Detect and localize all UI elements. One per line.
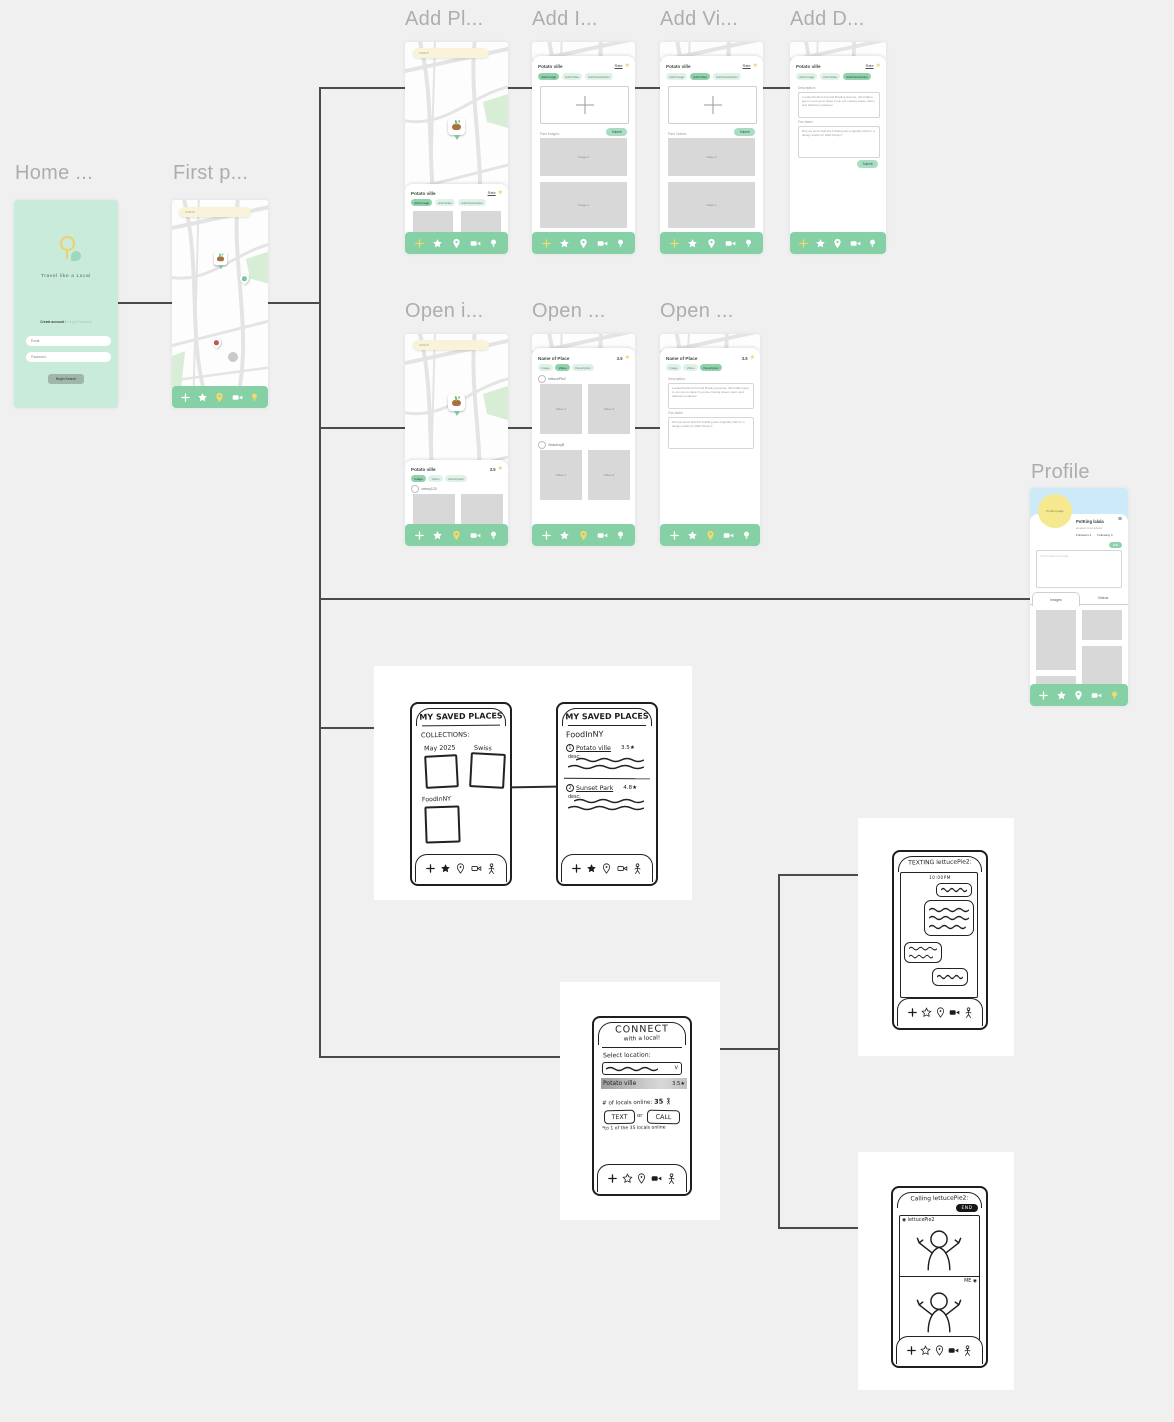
- star-icon[interactable]: [440, 863, 451, 874]
- star-icon[interactable]: [432, 238, 443, 249]
- star-icon: ★: [498, 466, 503, 472]
- collection-thumbnail[interactable]: [424, 805, 460, 843]
- frame-open-video[interactable]: Name of Place 3.5 ★ Image Video Descript…: [532, 334, 635, 546]
- app-tagline: Travel like a Local: [14, 274, 118, 279]
- username[interactable]: lettucePie2: [549, 377, 566, 381]
- image-upload-box[interactable]: [540, 86, 629, 124]
- flow-connector: [508, 87, 532, 89]
- add-icon[interactable]: [180, 392, 191, 403]
- star-icon[interactable]: [197, 392, 208, 403]
- video-tab-pill[interactable]: Video: [428, 475, 442, 482]
- flow-connector: [118, 302, 172, 304]
- place-name: Name of Place: [666, 356, 697, 361]
- locals-online-label: # of locals online:: [602, 1100, 652, 1107]
- submit-button[interactable]: Submit: [606, 128, 627, 136]
- star-icon[interactable]: [687, 530, 698, 541]
- add-description-pill[interactable]: Add Description: [843, 73, 871, 80]
- image-tab-pill[interactable]: Image: [538, 364, 553, 371]
- avatar-label: Profile Image: [1046, 509, 1064, 513]
- bottom-nav: [532, 232, 635, 254]
- rating-value: 3.5: [490, 467, 496, 472]
- collection-thumbnail[interactable]: [469, 752, 506, 789]
- fun-facts-textarea[interactable]: Did you know that this building was orig…: [668, 417, 754, 449]
- fun-facts-textarea[interactable]: Did you know that this building was orig…: [798, 126, 880, 158]
- video-tab-pill[interactable]: Video: [683, 364, 697, 371]
- user-video[interactable]: Video 2: [588, 450, 630, 500]
- star-icon[interactable]: [815, 238, 826, 249]
- video-icon[interactable]: [232, 392, 243, 403]
- search-input[interactable]: search: [413, 340, 489, 350]
- chat-bubble-received: [904, 942, 942, 963]
- submit-button[interactable]: Submit: [857, 160, 878, 168]
- sketch-nav-icons: [418, 856, 504, 880]
- flow-connector: [321, 427, 405, 429]
- flow-connector: [780, 874, 858, 876]
- selected-rating: 3.5★: [672, 1081, 685, 1087]
- selected-place: Potato ville: [603, 1080, 636, 1087]
- video-call-screen: ◉ lettucePie2 ME ◉: [899, 1215, 980, 1341]
- collection-thumbnail[interactable]: [424, 754, 459, 789]
- text-button[interactable]: TEXT: [604, 1110, 635, 1125]
- potato-icon: [452, 124, 461, 130]
- frame-add-video[interactable]: Potato ville Rate ★ Add Image Add Video …: [660, 42, 763, 254]
- user-video[interactable]: Video 2: [588, 384, 630, 434]
- past-image-label: Image 2: [578, 155, 589, 159]
- pin-icon[interactable]: [935, 1007, 946, 1018]
- video-icon[interactable]: [1091, 690, 1102, 701]
- add-icon[interactable]: [906, 1345, 917, 1356]
- location-dropdown[interactable]: v: [602, 1062, 682, 1075]
- search-placeholder: search: [419, 51, 429, 55]
- me-stick-figure: [912, 1288, 966, 1336]
- potato-place-marker[interactable]: [214, 252, 228, 266]
- flow-connector: [268, 302, 320, 304]
- user-avatar: [538, 375, 546, 383]
- description-textarea[interactable]: Located behind 2nd and Bowling Avenue, t…: [798, 92, 880, 118]
- past-video-label: Video 1: [706, 203, 716, 207]
- call-button[interactable]: CALL: [647, 1110, 680, 1125]
- description-tab-pill[interactable]: Description: [445, 475, 467, 482]
- star-icon: ★: [753, 63, 758, 69]
- text-button-label: TEXT: [611, 1113, 627, 1121]
- video-icon[interactable]: [651, 1173, 662, 1184]
- person-icon[interactable]: [486, 863, 497, 874]
- video-icon[interactable]: [850, 238, 861, 249]
- profile-name: PotKing lalala: [1076, 519, 1104, 524]
- person-icon[interactable]: [632, 863, 643, 874]
- connect-note: *to 1 of the 35 locals online: [602, 1125, 666, 1131]
- video-tab-pill[interactable]: Video: [555, 364, 569, 371]
- past-video-2[interactable]: Video 2: [668, 138, 755, 176]
- add-video-pill[interactable]: Add Video: [820, 73, 841, 80]
- star-icon[interactable]: [432, 530, 443, 541]
- sketch-canvas-texting[interactable]: TEXTING lettucePie2: 10:00PM: [858, 818, 1014, 1056]
- past-image-label: Image 1: [578, 203, 589, 207]
- sketch-calling-phone: Calling lettucePie2: END ◉ lettucePie2 M…: [891, 1186, 988, 1368]
- add-description-pill[interactable]: Add Description: [713, 73, 741, 80]
- add-icon[interactable]: [1038, 690, 1049, 701]
- star-icon[interactable]: [921, 1007, 932, 1018]
- past-video-label: Video 2: [706, 155, 716, 159]
- pin-icon[interactable]: [455, 863, 466, 874]
- password-field-label: Password:: [31, 355, 46, 359]
- star-icon[interactable]: [687, 238, 698, 249]
- flow-connector: [780, 1227, 858, 1229]
- place-bottom-sheet[interactable]: Name of Place 3.5 ★ Image Video Descript…: [532, 348, 635, 546]
- bottom-nav: [172, 386, 268, 408]
- place-bottom-sheet[interactable]: Potato ville Rate ★ Add Image Add Video …: [790, 56, 886, 254]
- collection-name: Swiss: [474, 744, 492, 753]
- camera-icon: ◉: [973, 1279, 977, 1284]
- sketch-saved-collections-phone: MY SAVED PLACES COLLECTIONS: May 2025 Sw…: [410, 702, 512, 886]
- tab-videos-label: Videos: [1098, 596, 1109, 600]
- description-textarea[interactable]: Located behind 2nd and Bowling Avenue, t…: [668, 383, 754, 409]
- sketch-saved-list-phone: MY SAVED PLACES FoodInNY 1 Potato ville …: [556, 702, 658, 886]
- item-number: 2: [566, 784, 574, 792]
- add-image-pill[interactable]: Add Image: [538, 73, 559, 80]
- potato-place-marker[interactable]: [448, 118, 465, 135]
- fun-facts-label: Fun facts!: [668, 411, 683, 415]
- link-divider: /: [65, 320, 66, 324]
- flow-connector: [321, 1056, 560, 1058]
- star-icon[interactable]: [559, 238, 570, 249]
- image-tab-pill[interactable]: Image: [666, 364, 681, 371]
- frame-title-open-video[interactable]: Open ...: [532, 300, 606, 323]
- description-tab-pill[interactable]: Description: [572, 364, 594, 371]
- user-video[interactable]: Video 1: [540, 384, 582, 434]
- about-input[interactable]: Tell us about yourself...: [1036, 550, 1122, 588]
- star-icon: ★: [625, 355, 630, 361]
- description-label: Description:: [668, 377, 686, 381]
- pin-icon[interactable]: [705, 530, 716, 541]
- past-video-1[interactable]: Video 1: [668, 182, 755, 228]
- bottom-nav: [660, 524, 760, 546]
- password-field[interactable]: Password:: [26, 352, 111, 362]
- video-icon[interactable]: [597, 238, 608, 249]
- search-input[interactable]: search: [413, 48, 489, 58]
- frame-open-description[interactable]: Name of Place 3.5 ★ Image Video Descript…: [660, 334, 760, 546]
- rate-link[interactable]: Rate: [743, 64, 751, 68]
- add-icon[interactable]: [541, 238, 552, 249]
- email-field-label: Email:: [31, 339, 40, 343]
- sketch-header: MY SAVED PLACES: [412, 711, 510, 722]
- video-icon[interactable]: [470, 530, 481, 541]
- map-background: [172, 200, 268, 408]
- add-video-pill[interactable]: Add Video: [435, 199, 456, 206]
- sketch-connector: [510, 786, 556, 789]
- saved-place-link[interactable]: Potato ville: [576, 745, 611, 752]
- add-icon[interactable]: [907, 1007, 918, 1018]
- following-count[interactable]: Following 4: [1097, 533, 1112, 537]
- email-field[interactable]: Email:: [26, 336, 111, 346]
- username[interactable]: celery123: [422, 487, 437, 491]
- add-icon[interactable]: [607, 1173, 618, 1184]
- person-icon[interactable]: [962, 1345, 973, 1356]
- saved-place-rating: 4.8★: [623, 785, 637, 791]
- fun-facts-label: Fun facts!: [798, 120, 813, 124]
- flow-connector: [321, 727, 374, 729]
- bulb-icon[interactable]: [615, 530, 626, 541]
- collection-name: May 2025: [424, 743, 456, 752]
- collection-title: FoodInNY: [566, 730, 604, 740]
- bulb-icon[interactable]: [488, 238, 499, 249]
- search-input[interactable]: search: [179, 207, 251, 217]
- create-account-link[interactable]: Create account: [40, 320, 64, 324]
- star-icon: ★: [750, 355, 755, 361]
- pin-icon[interactable]: [451, 238, 462, 249]
- video-icon[interactable]: [723, 530, 734, 541]
- sketch-canvas-saved-places[interactable]: MY SAVED PLACES COLLECTIONS: May 2025 Sw…: [374, 666, 692, 900]
- frame-title-add-video[interactable]: Add Vi...: [660, 8, 738, 31]
- bottom-nav: [660, 232, 763, 254]
- bulb-icon[interactable]: [743, 238, 754, 249]
- bottom-nav: [405, 232, 508, 254]
- sketch-header: MY SAVED PLACES: [558, 712, 656, 722]
- description-tab-pill[interactable]: Description: [700, 364, 722, 371]
- video-caption: Video 2: [604, 473, 614, 477]
- place-bottom-sheet[interactable]: Potato ville Rate ★ Add Image Add Video …: [660, 56, 763, 254]
- flow-connector: [635, 87, 660, 89]
- flow-connector: [321, 598, 1030, 600]
- username[interactable]: BokchoyB: [549, 443, 565, 447]
- pin-icon[interactable]: [934, 1345, 945, 1356]
- saved-place-link[interactable]: Sunset Park: [576, 785, 613, 792]
- flow-connector: [778, 874, 780, 1229]
- add-video-pill[interactable]: Add Video: [690, 73, 711, 80]
- add-image-pill[interactable]: Add Image: [411, 199, 432, 206]
- frame-title-home[interactable]: Home ...: [15, 162, 93, 185]
- search-placeholder: search: [185, 210, 195, 214]
- remote-stick-figure: [912, 1226, 966, 1274]
- tab-images[interactable]: Images: [1032, 592, 1080, 606]
- star-icon: ★: [625, 63, 630, 69]
- rating-value: 3.5: [617, 356, 623, 361]
- user-avatar: [411, 485, 419, 493]
- frame-profile[interactable]: Profile Image ≡ PotKing lalala amateur l…: [1030, 488, 1128, 706]
- place-name: Potato ville: [666, 64, 691, 69]
- menu-icon[interactable]: ≡: [1118, 516, 1122, 523]
- bulb-icon[interactable]: [249, 392, 260, 403]
- place-name: Potato ville: [796, 64, 821, 69]
- me-label: ME: [964, 1279, 971, 1284]
- place-name: Potato ville: [411, 191, 436, 196]
- frame-open-image[interactable]: search Potato ville 3.5 ★ Image Video De…: [405, 334, 508, 546]
- potato-icon: [217, 256, 224, 261]
- star-icon: ★: [876, 63, 881, 69]
- sketch-texting-phone: TEXTING lettucePie2: 10:00PM: [892, 850, 988, 1030]
- collections-label: COLLECTIONS:: [421, 731, 470, 740]
- pin-icon[interactable]: [214, 392, 225, 403]
- chat-bubble-sent: [936, 883, 972, 897]
- frame-add-description[interactable]: Potato ville Rate ★ Add Image Add Video …: [790, 42, 886, 254]
- frame-add-place[interactable]: search Potato ville Rate ★ Add Image Add…: [405, 42, 508, 254]
- chat-bubble-sent: [924, 900, 974, 936]
- rate-link[interactable]: Rate: [866, 64, 874, 68]
- bottom-nav: [790, 232, 886, 254]
- video-icon[interactable]: [725, 238, 736, 249]
- rate-link[interactable]: Rate: [488, 191, 496, 195]
- call-button-label: CALL: [655, 1113, 671, 1121]
- remote-user-label: lettucePie2: [908, 1218, 935, 1223]
- sketch-canvas-connect[interactable]: CONNECT with a local! Select location: v…: [560, 982, 720, 1220]
- add-icon[interactable]: [541, 530, 552, 541]
- app-logo-icon: [58, 236, 84, 262]
- tab-images-label: Images: [1050, 598, 1061, 602]
- person-icon[interactable]: [963, 1007, 974, 1018]
- video-icon[interactable]: [948, 1345, 959, 1356]
- frame-title-profile[interactable]: Profile: [1031, 461, 1090, 484]
- sketch-nav-icons: [899, 1338, 980, 1362]
- past-items-label: Past Videos:: [668, 132, 687, 136]
- add-image-pill[interactable]: Add Image: [796, 73, 817, 80]
- add-icon[interactable]: [669, 238, 680, 249]
- pin-icon[interactable]: [706, 238, 717, 249]
- or-label: or: [637, 1113, 643, 1119]
- chat-bubble-sent: [932, 968, 968, 986]
- chevron-down-icon: v: [674, 1064, 678, 1071]
- frame-title-add-place[interactable]: Add Pl...: [405, 8, 483, 31]
- end-call-label: END: [962, 1206, 973, 1211]
- video-caption: Video 2: [604, 407, 614, 411]
- pin-icon[interactable]: [578, 238, 589, 249]
- place-name: Potato ville: [411, 467, 436, 472]
- add-image-pill[interactable]: Add Image: [666, 73, 687, 80]
- camera-icon: ◉: [902, 1218, 906, 1223]
- select-location-label: Select location:: [603, 1052, 651, 1060]
- add-icon[interactable]: [798, 238, 809, 249]
- bottom-nav: [532, 524, 635, 546]
- begin-search-button[interactable]: Begin Search: [48, 374, 84, 384]
- frame-title-open-image[interactable]: Open i...: [405, 300, 483, 323]
- item-number: 1: [566, 744, 574, 752]
- potato-place-marker[interactable]: [448, 394, 465, 411]
- star-icon[interactable]: [920, 1345, 931, 1356]
- video-icon[interactable]: [949, 1007, 960, 1018]
- add-video-pill[interactable]: Add Video: [562, 73, 583, 80]
- rate-link[interactable]: Rate: [615, 64, 623, 68]
- frame-title-open-description[interactable]: Open ...: [660, 300, 734, 323]
- frame-first-page[interactable]: search: [172, 200, 268, 408]
- star-icon[interactable]: [622, 1173, 633, 1184]
- flow-connector: [319, 87, 321, 1058]
- past-image-2[interactable]: Image 2: [540, 138, 627, 176]
- bulb-icon[interactable]: [867, 238, 878, 249]
- sketch-nav-icons: [600, 1166, 684, 1190]
- chat-timestamp: 10:00PM: [894, 875, 986, 880]
- video-caption: Video 1: [556, 407, 566, 411]
- saved-place-rating: 3.5★: [621, 745, 635, 751]
- locals-online-count: 35: [654, 1098, 663, 1106]
- profile-image-tile[interactable]: [1082, 610, 1122, 640]
- flow-connector: [763, 87, 790, 89]
- video-caption: Video 1: [556, 473, 566, 477]
- star-icon: ★: [498, 190, 503, 196]
- user-avatar: [538, 441, 546, 449]
- pin-icon[interactable]: [636, 1173, 647, 1184]
- frame-title-add-description[interactable]: Add D...: [790, 8, 865, 31]
- frame-title-add-image[interactable]: Add I...: [532, 8, 598, 31]
- edit-profile-button[interactable]: Edit: [1109, 542, 1122, 548]
- sketch-nav-icons: [564, 856, 650, 880]
- bottom-nav: [405, 524, 508, 546]
- figma-canvas[interactable]: Home ... First p... Add Pl... Add I... A…: [0, 0, 1174, 1422]
- followers-count[interactable]: Followers 4: [1076, 533, 1091, 537]
- pin-icon[interactable]: [832, 238, 843, 249]
- place-name: Potato ville: [538, 64, 563, 69]
- sketch-canvas-calling[interactable]: Calling lettucePie2: END ◉ lettucePie2 M…: [858, 1152, 1014, 1390]
- selected-location-row[interactable]: Potato ville 3.5★: [601, 1078, 687, 1089]
- collection-name: FoodInNY: [422, 795, 451, 803]
- add-icon[interactable]: [425, 863, 436, 874]
- sketch-connect-phone: CONNECT with a local! Select location: v…: [592, 1016, 692, 1196]
- past-items-label: Past Images:: [540, 132, 560, 136]
- person-icon[interactable]: [666, 1173, 677, 1184]
- add-icon[interactable]: [414, 238, 425, 249]
- video-icon[interactable]: [470, 238, 481, 249]
- potato-icon: [452, 400, 461, 406]
- about-placeholder: Tell us about yourself...: [1040, 554, 1071, 558]
- bulb-icon[interactable]: [741, 530, 752, 541]
- add-icon[interactable]: [414, 530, 425, 541]
- place-name: Name of Place: [538, 356, 569, 361]
- frame-home[interactable]: Travel like a Local Create account / For…: [14, 200, 118, 408]
- submit-button[interactable]: Submit: [734, 128, 755, 136]
- search-placeholder: search: [419, 343, 429, 347]
- star-icon[interactable]: [1056, 690, 1067, 701]
- flow-connector: [508, 427, 532, 429]
- bulb-icon[interactable]: [488, 530, 499, 541]
- flow-connector: [635, 427, 660, 429]
- user-video[interactable]: Video 1: [540, 450, 582, 500]
- end-call-button[interactable]: END: [956, 1204, 978, 1212]
- flow-connector: [321, 87, 405, 89]
- frame-add-image[interactable]: Potato ville Rate ★ Add Image Add Video …: [532, 42, 635, 254]
- profile-subtitle: amateur local advisor: [1076, 526, 1103, 530]
- sketch-nav-icons: [900, 1000, 980, 1024]
- profile-image-tile[interactable]: [1036, 610, 1076, 670]
- flow-connector: [720, 1048, 778, 1050]
- bulb-icon[interactable]: [615, 238, 626, 249]
- place-bottom-sheet[interactable]: Name of Place 3.5 ★ Image Video Descript…: [660, 348, 760, 546]
- past-image-1[interactable]: Image 1: [540, 182, 627, 228]
- pin-icon[interactable]: [601, 863, 612, 874]
- video-icon[interactable]: [471, 863, 482, 874]
- image-tab-pill[interactable]: Image: [411, 475, 426, 482]
- pin-icon[interactable]: [578, 530, 589, 541]
- star-icon[interactable]: [559, 530, 570, 541]
- bottom-nav: [1030, 684, 1128, 706]
- add-icon[interactable]: [571, 863, 582, 874]
- current-location-dot: [228, 352, 238, 362]
- description-label: Description:: [798, 86, 816, 90]
- star-icon[interactable]: [586, 863, 597, 874]
- pin-icon[interactable]: [451, 530, 462, 541]
- tab-videos[interactable]: Videos: [1080, 592, 1126, 604]
- place-bottom-sheet[interactable]: Potato ville Rate ★ Add Image Add Video …: [532, 56, 635, 254]
- add-icon[interactable]: [669, 530, 680, 541]
- video-upload-box[interactable]: [668, 86, 757, 124]
- frame-title-first-page[interactable]: First p...: [173, 162, 248, 185]
- add-description-pill[interactable]: Add Description: [458, 199, 486, 206]
- forgot-password-link[interactable]: Forgot Password: [67, 320, 92, 324]
- add-description-pill[interactable]: Add Description: [585, 73, 613, 80]
- bulb-icon[interactable]: [1109, 690, 1120, 701]
- rating-value: 3.5: [742, 356, 748, 361]
- video-icon[interactable]: [617, 863, 628, 874]
- video-icon[interactable]: [597, 530, 608, 541]
- pin-icon[interactable]: [1073, 690, 1084, 701]
- profile-avatar[interactable]: Profile Image: [1038, 494, 1072, 528]
